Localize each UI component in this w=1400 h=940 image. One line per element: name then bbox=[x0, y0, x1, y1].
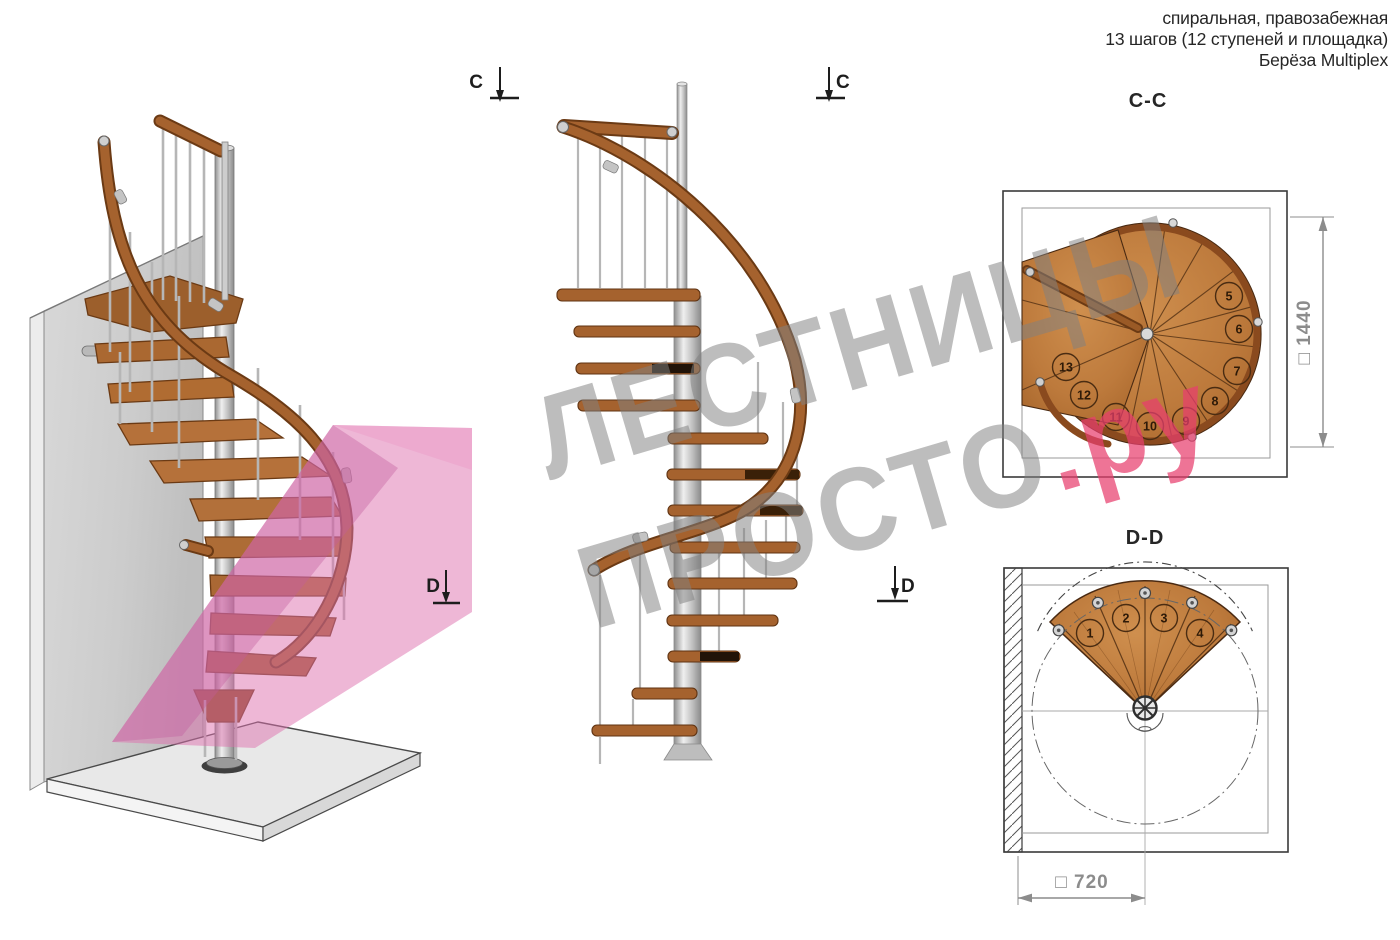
drawing-canvas: C C D D bbox=[0, 0, 1400, 940]
stair-elevation-view bbox=[557, 82, 803, 764]
svg-text:8: 8 bbox=[1212, 395, 1219, 409]
step bbox=[667, 615, 778, 626]
svg-text:C: C bbox=[469, 72, 483, 93]
step-shadow bbox=[652, 364, 694, 373]
svg-text:13: 13 bbox=[1059, 361, 1073, 375]
wall-hatch bbox=[1004, 568, 1022, 852]
svg-text:1: 1 bbox=[1087, 627, 1094, 641]
svg-text:3: 3 bbox=[1161, 612, 1168, 626]
svg-text:4: 4 bbox=[1197, 627, 1204, 641]
svg-text:□ 1440: □ 1440 bbox=[1294, 299, 1315, 364]
baluster-bolt bbox=[1169, 219, 1177, 227]
stair-material: Берёза Multiplex bbox=[1105, 50, 1388, 71]
svg-text:5: 5 bbox=[1226, 290, 1233, 304]
svg-text:11: 11 bbox=[1109, 411, 1122, 425]
step bbox=[578, 400, 700, 411]
step bbox=[632, 688, 697, 699]
svg-text:□ 720: □ 720 bbox=[1055, 872, 1108, 893]
svg-text:9: 9 bbox=[1183, 415, 1190, 429]
section-marker-c-left: C bbox=[469, 67, 519, 102]
svg-text:10: 10 bbox=[1143, 420, 1157, 434]
staircase-drawing: C C D D bbox=[0, 0, 1400, 940]
section-marker-d-right: D bbox=[877, 566, 915, 601]
section-marker-c-right: C bbox=[816, 67, 850, 102]
stair-type: спиральная, правозабежная bbox=[1105, 8, 1388, 29]
top-post bbox=[222, 142, 228, 300]
svg-text:C: C bbox=[836, 72, 850, 93]
plan-view-dd: 1 2 3 4 □ 720 bbox=[1004, 562, 1288, 905]
svg-text:12: 12 bbox=[1077, 389, 1091, 403]
step bbox=[592, 725, 697, 736]
stair-steps-info: 13 шагов (12 ступеней и площадка) bbox=[1105, 29, 1388, 50]
dimension-1440: □ 1440 bbox=[1290, 217, 1334, 447]
pole-plan-cc bbox=[1141, 328, 1153, 340]
dimension-720: □ 720 bbox=[1018, 856, 1145, 905]
svg-text:D: D bbox=[901, 576, 915, 597]
step bbox=[574, 326, 700, 337]
section-label-cc: C-C bbox=[1118, 90, 1178, 113]
section-label-dd: D-D bbox=[1115, 527, 1175, 550]
svg-text:7: 7 bbox=[1234, 365, 1241, 379]
svg-text:D: D bbox=[426, 576, 440, 597]
landing-step bbox=[557, 289, 700, 301]
step bbox=[668, 578, 797, 589]
step bbox=[670, 542, 800, 553]
step-shadow bbox=[700, 652, 739, 661]
svg-text:6: 6 bbox=[1236, 323, 1243, 337]
step bbox=[668, 433, 768, 444]
title-block: спиральная, правозабежная 13 шагов (12 с… bbox=[1105, 8, 1388, 71]
svg-text:2: 2 bbox=[1123, 612, 1130, 626]
plan-view-cc: 5 6 7 8 9 10 11 12 13 □ 1440 bbox=[1003, 191, 1334, 477]
pole-plan-dd bbox=[1127, 697, 1163, 732]
stair-3d-view bbox=[30, 121, 472, 841]
baluster-bolt bbox=[1254, 318, 1262, 326]
step-shadow bbox=[760, 506, 802, 515]
